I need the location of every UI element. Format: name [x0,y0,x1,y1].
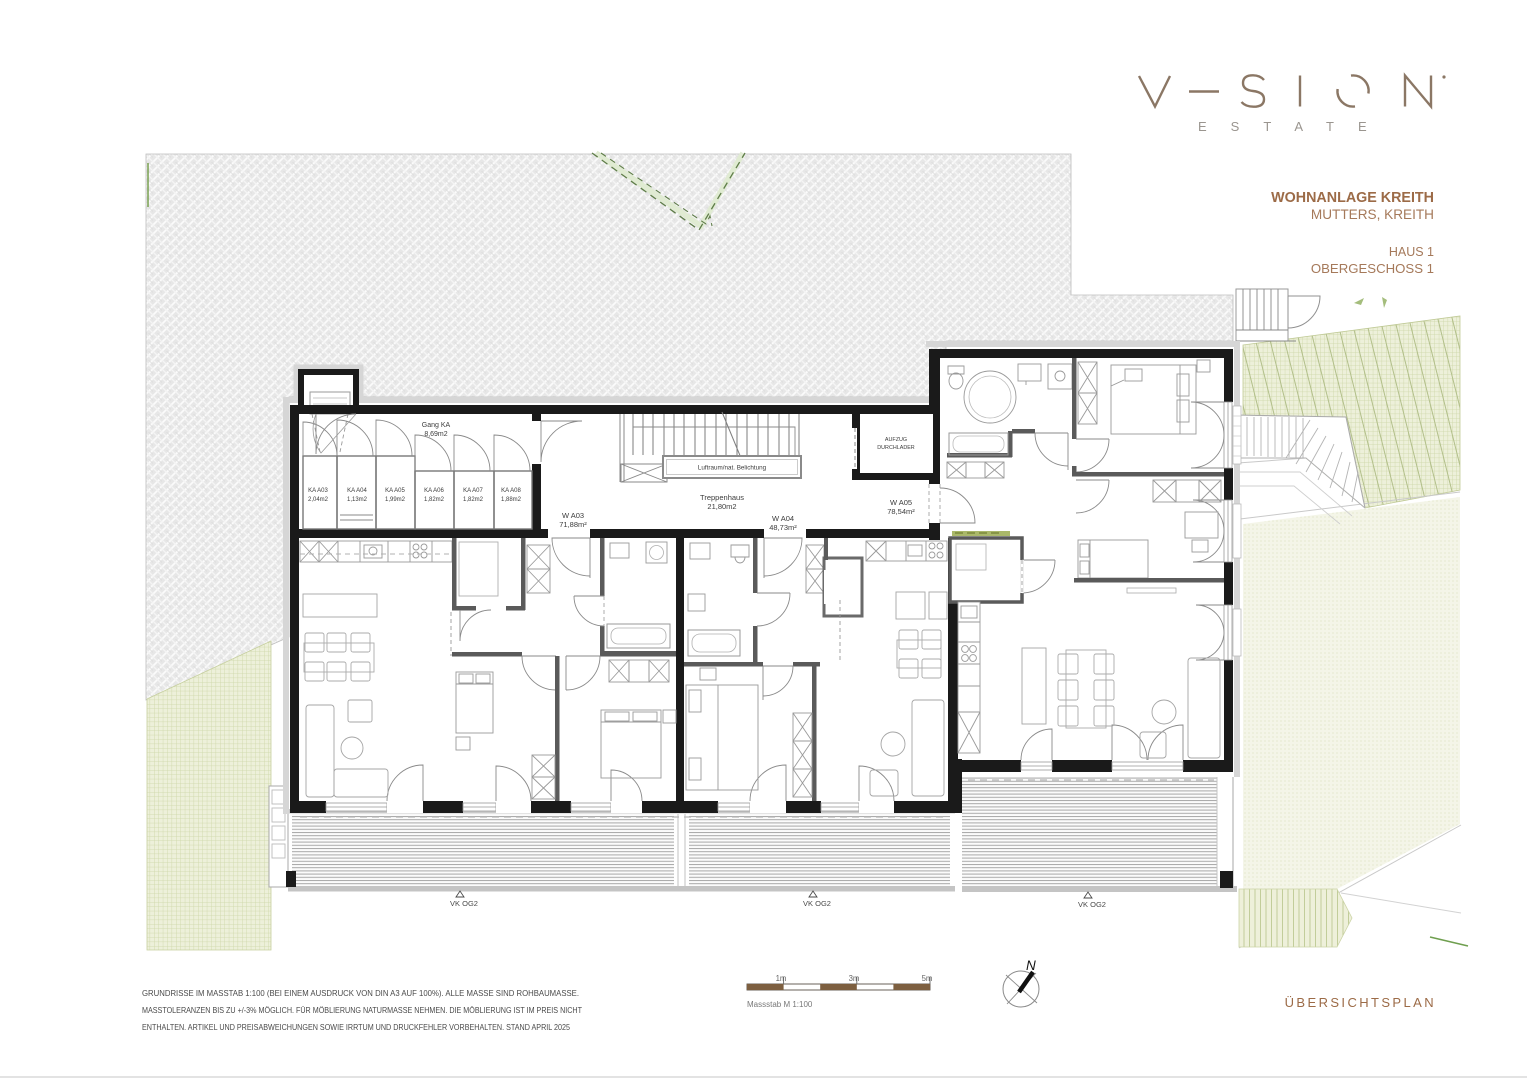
svg-text:KA A05: KA A05 [385,488,405,494]
svg-text:Gang KA: Gang KA [422,422,451,429]
svg-text:KA A07: KA A07 [463,488,483,494]
svg-text:DURCHLADER: DURCHLADER [877,445,915,451]
svg-text:Massstab M 1:100: Massstab M 1:100 [747,1000,813,1009]
svg-text:ESTATE: ESTATE [1198,119,1391,134]
svg-text:2,04m2: 2,04m2 [308,497,329,503]
svg-text:WOHNANLAGE KREITH: WOHNANLAGE KREITH [1271,190,1434,206]
svg-text:W A04: W A04 [772,514,794,523]
svg-text:N: N [1026,958,1036,973]
svg-text:1,82m2: 1,82m2 [424,497,445,503]
svg-text:VK OG2: VK OG2 [1078,900,1106,909]
svg-text:ÜBERSICHTSPLAN: ÜBERSICHTSPLAN [1285,995,1436,1010]
svg-text:KA A06: KA A06 [424,488,444,494]
svg-text:8,69m2: 8,69m2 [424,431,447,438]
svg-text:KA A03: KA A03 [308,488,328,494]
svg-text:KA A08: KA A08 [501,488,521,494]
svg-text:W A03: W A03 [562,511,584,520]
svg-text:W A05: W A05 [890,498,912,507]
svg-text:HAUS 1: HAUS 1 [1389,245,1434,259]
svg-text:AUFZUG: AUFZUG [885,437,907,443]
svg-text:MASSTOLERANZEN BIS ZU +/-3% MÖ: MASSTOLERANZEN BIS ZU +/-3% MÖGLICH. FÜR… [142,1006,582,1015]
svg-text:ENTHALTEN. ARTIKEL UND PREISAB: ENTHALTEN. ARTIKEL UND PREISABWEICHUNGEN… [142,1023,571,1032]
svg-text:MUTTERS, KREITH: MUTTERS, KREITH [1311,207,1434,222]
svg-text:5m: 5m [922,974,933,983]
svg-text:48,73m²: 48,73m² [769,523,797,532]
svg-text:1,13m2: 1,13m2 [347,497,368,503]
svg-text:Treppenhaus: Treppenhaus [700,493,744,502]
svg-text:KA A04: KA A04 [347,488,367,494]
svg-text:1,99m2: 1,99m2 [385,497,406,503]
svg-text:GRUNDRISSE IM MASSTAB 1:100 (B: GRUNDRISSE IM MASSTAB 1:100 (BEI EINEM A… [142,989,579,998]
svg-text:1,82m2: 1,82m2 [463,497,484,503]
svg-text:71,88m²: 71,88m² [559,520,587,529]
svg-text:VK OG2: VK OG2 [450,899,478,908]
svg-text:VK OG2: VK OG2 [803,899,831,908]
svg-text:3m: 3m [849,974,860,983]
svg-text:1,88m2: 1,88m2 [501,497,522,503]
svg-text:1m: 1m [776,974,787,983]
svg-text:78,54m²: 78,54m² [887,507,915,516]
svg-text:OBERGESCHOSS 1: OBERGESCHOSS 1 [1311,261,1434,276]
svg-text:21,80m2: 21,80m2 [707,502,736,511]
svg-text:Luftraum/nat. Belichtung: Luftraum/nat. Belichtung [698,465,767,472]
